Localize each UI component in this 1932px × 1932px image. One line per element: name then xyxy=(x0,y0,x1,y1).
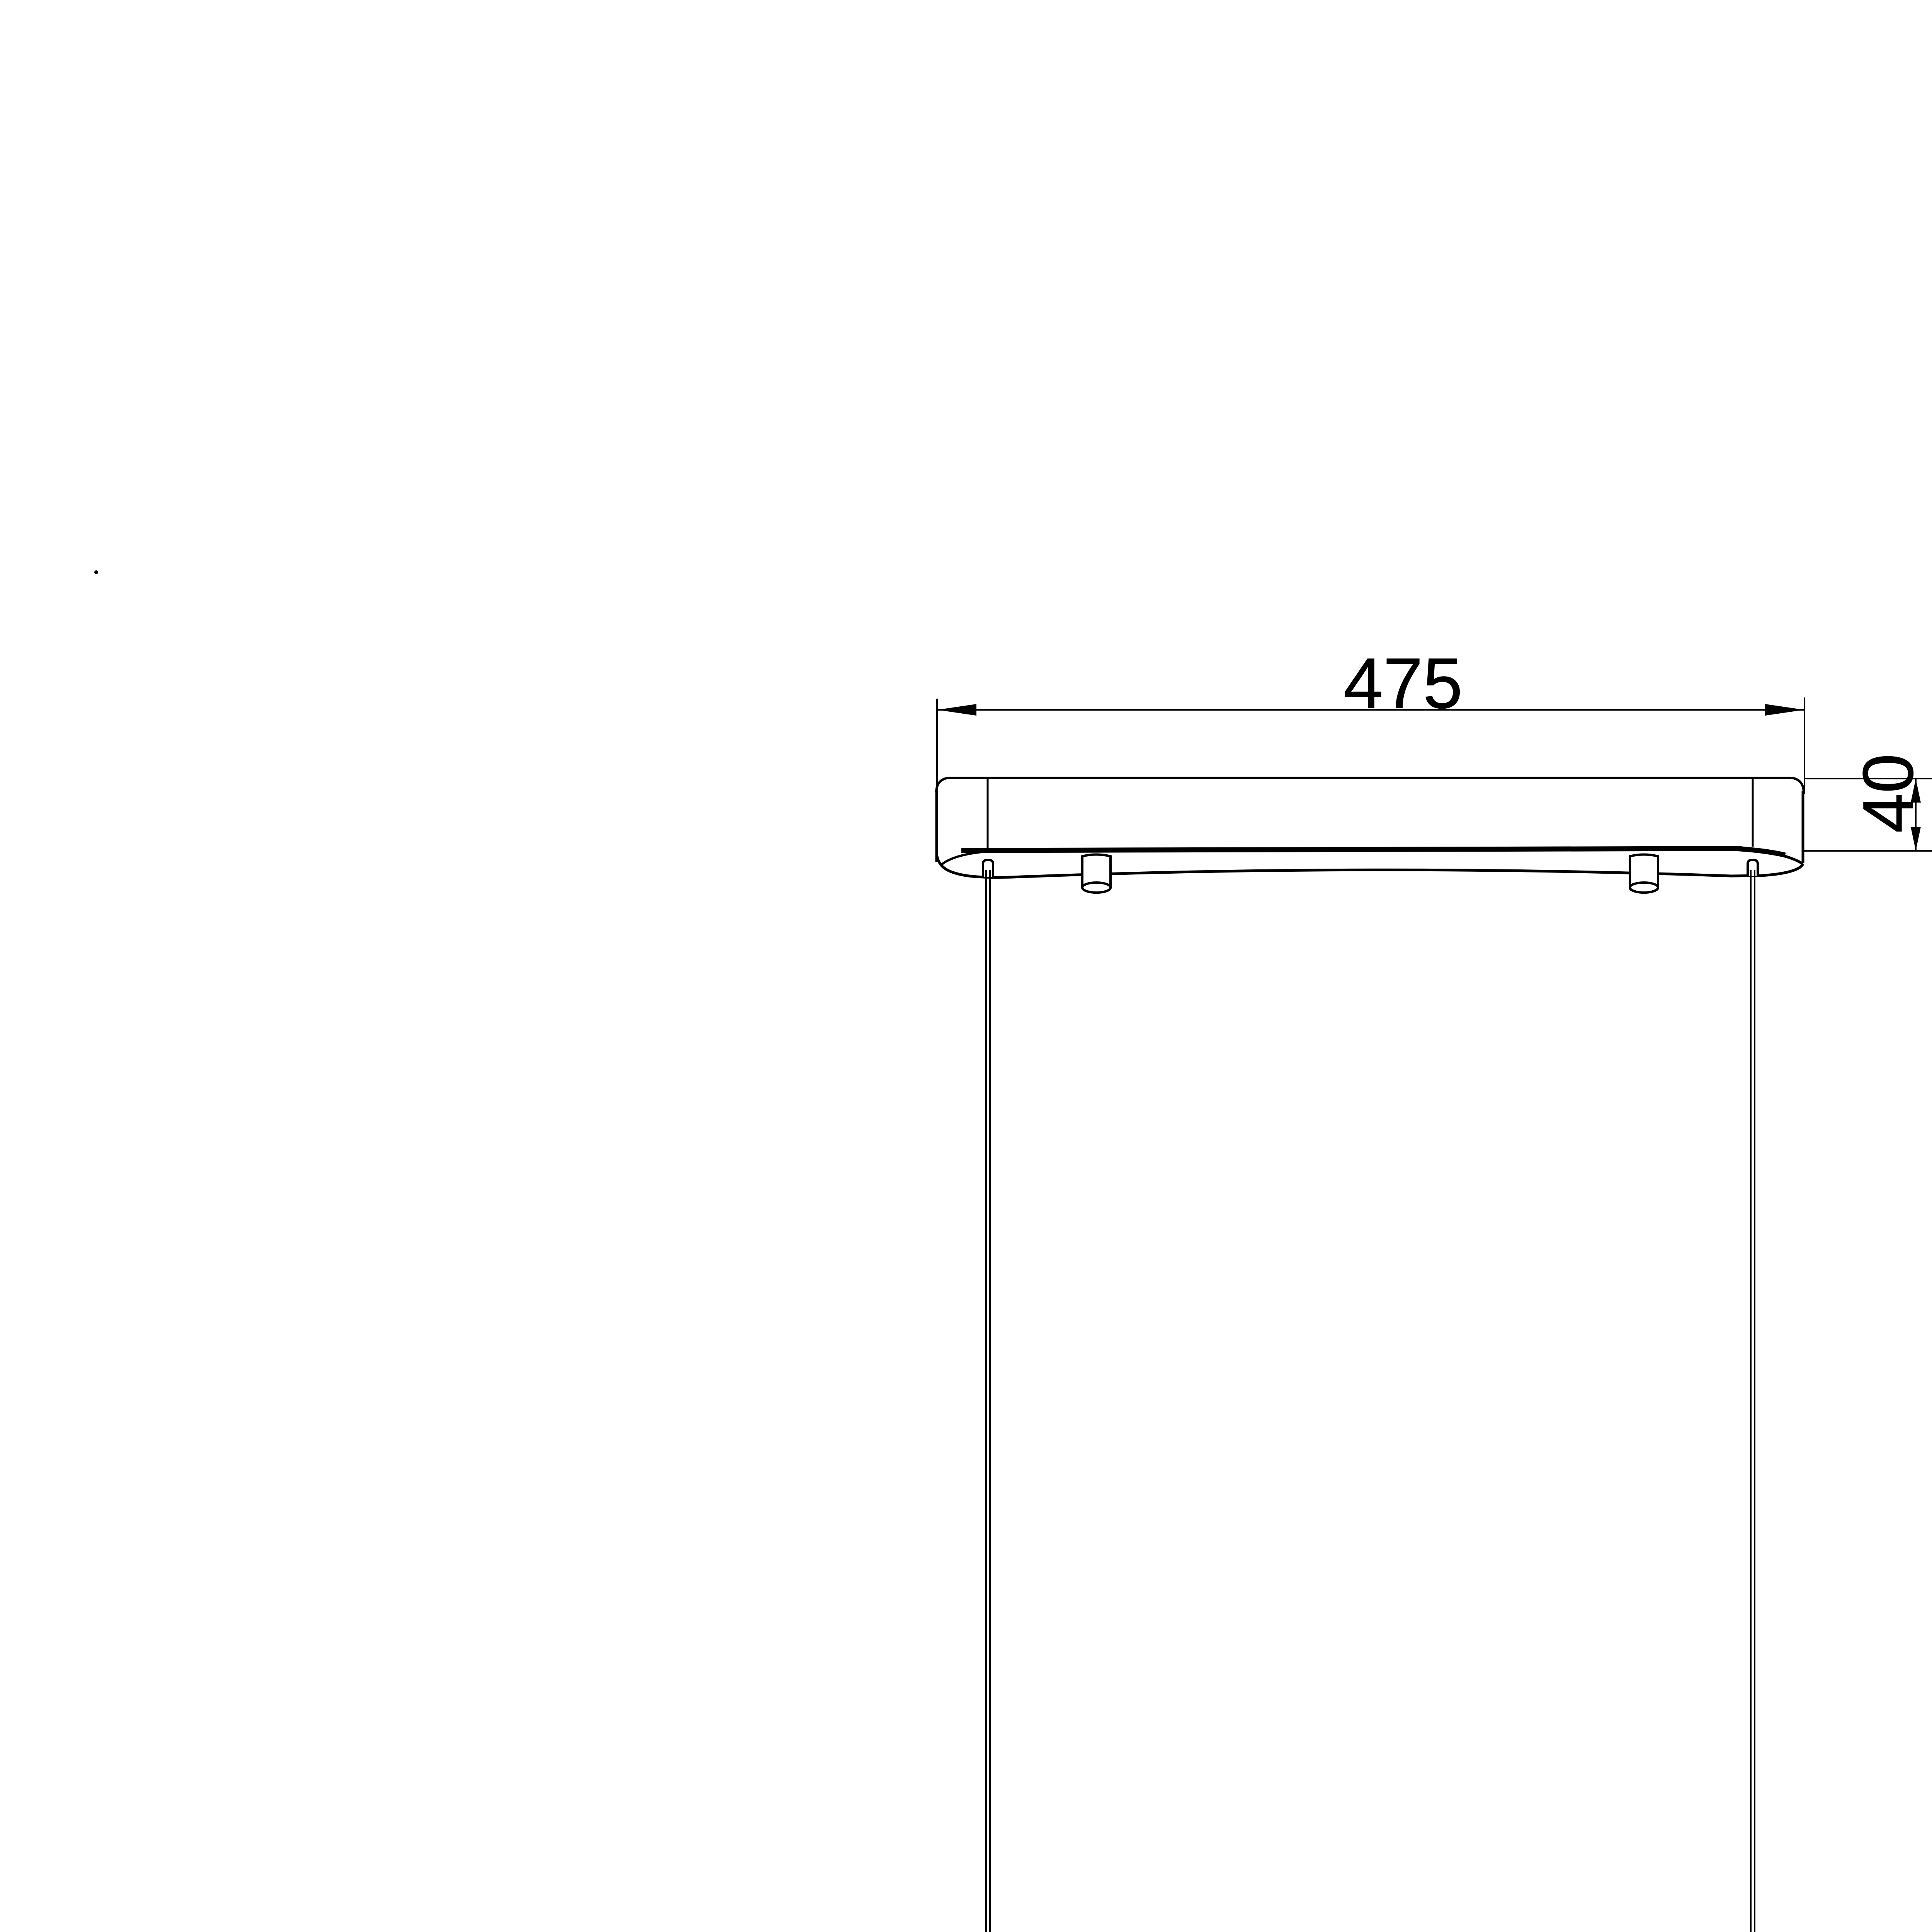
svg-text:475: 475 xyxy=(1344,644,1463,723)
svg-text:40: 40 xyxy=(1849,753,1928,833)
